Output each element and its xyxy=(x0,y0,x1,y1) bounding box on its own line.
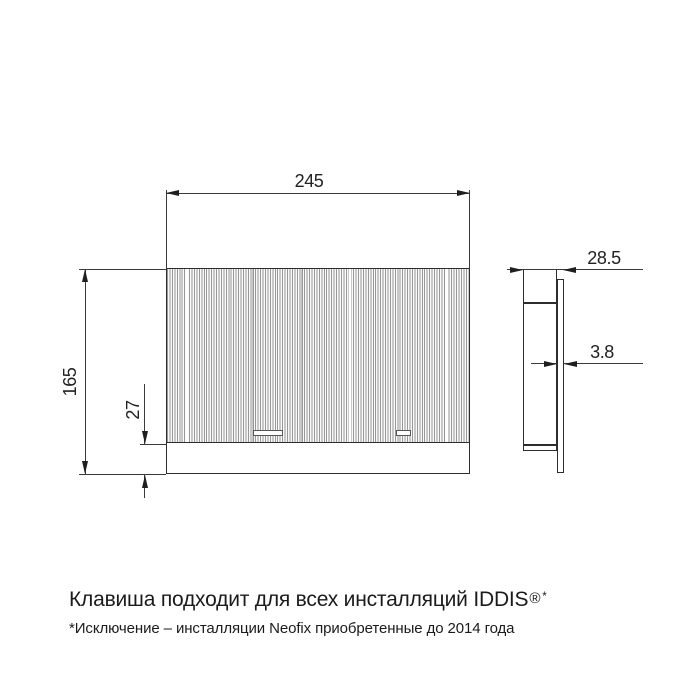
arrowhead-down-icon xyxy=(142,431,148,444)
dim-height-label: 165 xyxy=(61,361,79,403)
flush-plate-technical-drawing: 245 165 27 28.5 3.8 Клавиша подходит для… xyxy=(0,0,700,700)
dim-245-ext-left xyxy=(166,190,167,269)
arrowhead-up-icon xyxy=(142,475,148,488)
ribbed-surface xyxy=(167,269,469,443)
panel-seam-middle xyxy=(349,269,351,442)
panel-seam-right xyxy=(446,269,448,442)
arrowhead-up-icon xyxy=(82,269,88,282)
dim-245-ext-right xyxy=(469,190,470,269)
caption-title: Клавиша подходит для всех инсталляций ID… xyxy=(69,588,547,612)
arrowhead-right-icon xyxy=(457,190,470,196)
footnote-asterisk: * xyxy=(542,591,546,603)
arrowhead-right-icon xyxy=(510,267,523,273)
dim-165-line xyxy=(85,269,86,475)
arrowhead-left-icon xyxy=(563,267,576,273)
dim-27-ext xyxy=(140,444,166,445)
dim-depth-label: 28.5 xyxy=(578,249,630,267)
arrowhead-left-icon xyxy=(166,190,179,196)
dim-bottom-strip-label: 27 xyxy=(124,393,142,427)
registered-trademark-icon: ® xyxy=(529,590,540,607)
frame-inner-line-top xyxy=(524,302,556,304)
side-view-plate xyxy=(557,279,564,473)
arrowhead-left-icon xyxy=(564,361,577,367)
arrowhead-down-icon xyxy=(82,461,88,474)
dim-245-line xyxy=(166,193,470,194)
dim-165-ext-top xyxy=(79,269,166,270)
panel-seam-left xyxy=(186,269,188,442)
dim-thickness-label: 3.8 xyxy=(580,343,624,361)
frame-inner-line-bottom xyxy=(524,444,556,446)
front-view-plate xyxy=(166,268,470,474)
dim-width-label: 245 xyxy=(284,172,334,190)
button-slot-small xyxy=(396,430,411,436)
arrowhead-right-icon xyxy=(544,361,557,367)
button-slot-large xyxy=(253,430,283,436)
caption-footnote: *Исключение – инсталляции Neofix приобре… xyxy=(69,620,514,637)
caption-title-text: Клавиша подходит для всех инсталляций ID… xyxy=(69,588,528,611)
dim-165-ext-bottom xyxy=(79,474,166,475)
